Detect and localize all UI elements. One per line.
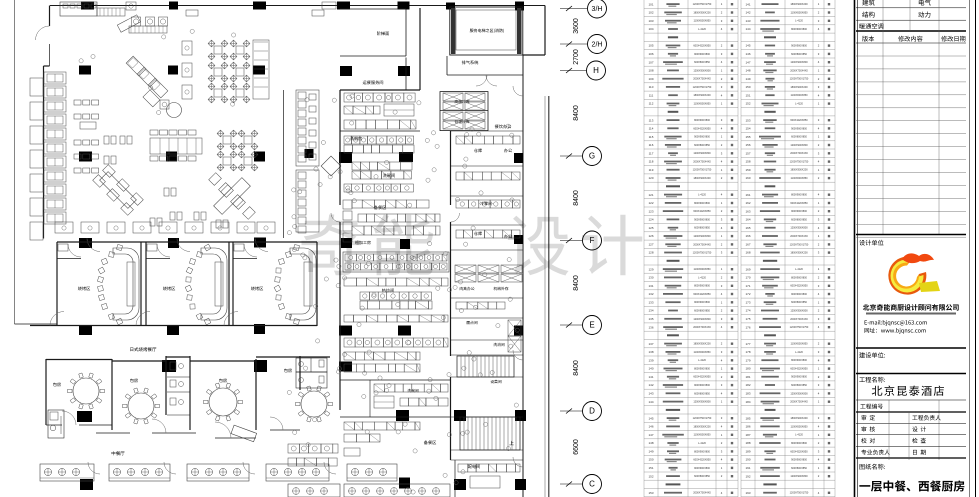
svg-text:191: 191	[745, 466, 750, 470]
svg-text:900X900X800: 900X900X800	[791, 127, 807, 130]
svg-text:1: 1	[721, 234, 723, 238]
svg-text:4: 4	[818, 60, 820, 64]
svg-text:900X900X800: 900X900X800	[694, 53, 710, 56]
svg-text:108: 108	[648, 69, 653, 73]
svg-text:8400: 8400	[573, 105, 580, 121]
svg-text:2: 2	[721, 209, 723, 213]
svg-text:4: 4	[818, 391, 820, 395]
svg-text:192: 192	[745, 474, 750, 478]
svg-text:146: 146	[648, 425, 653, 429]
svg-text:2: 2	[721, 441, 723, 445]
svg-text:1: 1	[721, 267, 723, 271]
svg-text:1: 1	[721, 168, 723, 172]
svg-text:3: 3	[721, 383, 723, 387]
svg-text:2: 2	[721, 474, 723, 478]
svg-text:1200X750X1750: 1200X750X1750	[790, 326, 809, 329]
svg-text:129: 129	[648, 267, 653, 271]
svg-text:8400: 8400	[573, 190, 580, 206]
svg-text:145: 145	[648, 416, 653, 420]
svg-text:4: 4	[721, 126, 723, 130]
svg-text:1: 1	[818, 234, 820, 238]
svg-text:600X4220X850: 600X4220X850	[693, 376, 711, 379]
svg-text:1800X900X200: 1800X900X200	[790, 3, 808, 6]
svg-text:900X900X800: 900X900X800	[694, 136, 710, 139]
svg-text:600X800X850: 600X800X850	[791, 301, 807, 304]
svg-text:3: 3	[721, 118, 723, 122]
svg-text:119: 119	[649, 168, 654, 172]
svg-text:2: 2	[818, 209, 820, 213]
svg-text:3: 3	[818, 85, 820, 89]
svg-text:1200X900X800: 1200X900X800	[790, 227, 808, 230]
svg-text:148: 148	[648, 441, 653, 445]
svg-text:177: 177	[745, 342, 750, 346]
svg-text:2: 2	[721, 375, 723, 379]
svg-text:3: 3	[818, 383, 820, 387]
svg-text:800X900X800: 800X900X800	[791, 359, 807, 362]
svg-text:157: 157	[745, 151, 750, 155]
svg-text:2: 2	[818, 275, 820, 279]
svg-text:147: 147	[648, 433, 653, 437]
svg-text:186: 186	[745, 425, 750, 429]
svg-text:2: 2	[818, 242, 820, 246]
svg-text:F: F	[590, 236, 595, 245]
svg-text:111: 111	[649, 93, 654, 97]
svg-text:153: 153	[648, 491, 653, 495]
svg-text:2000X700X4X0: 2000X700X4X0	[790, 235, 808, 238]
svg-text:136: 136	[648, 325, 653, 329]
svg-text:2000X700X4X0: 2000X700X4X0	[790, 318, 808, 321]
svg-text:141: 141	[648, 375, 653, 379]
svg-text:152: 152	[648, 474, 653, 478]
svg-text:145: 145	[745, 44, 750, 48]
svg-text:2: 2	[818, 77, 820, 81]
svg-text:3: 3	[818, 19, 820, 23]
svg-text:2: 2	[818, 441, 820, 445]
svg-text:101: 101	[648, 2, 653, 6]
svg-text:4: 4	[721, 27, 723, 31]
svg-text:D: D	[589, 407, 595, 416]
svg-text:3: 3	[721, 317, 723, 321]
svg-text:174: 174	[745, 309, 750, 313]
svg-text:147: 147	[745, 60, 750, 64]
svg-text:142: 142	[745, 11, 750, 15]
svg-text:3: 3	[818, 118, 820, 122]
svg-text:172: 172	[745, 292, 750, 296]
svg-text:3: 3	[721, 52, 723, 56]
svg-text:1100X600X850: 1100X600X850	[790, 425, 808, 428]
svg-text:1200X900X800: 1200X900X800	[790, 310, 808, 313]
svg-text:L-4120: L-4120	[698, 276, 706, 279]
svg-text:125: 125	[648, 226, 653, 230]
svg-text:4: 4	[721, 60, 723, 64]
svg-text:2: 2	[721, 143, 723, 147]
svg-text:1200X750X1750: 1200X750X1750	[693, 417, 712, 420]
svg-text:4: 4	[818, 458, 820, 462]
svg-text:600X800X850: 600X800X850	[694, 475, 710, 478]
svg-text:800X900X800: 800X900X800	[791, 194, 807, 197]
svg-text:139: 139	[648, 358, 653, 362]
svg-text:1800X900X200: 1800X900X200	[790, 252, 808, 255]
svg-text:146: 146	[745, 52, 750, 56]
svg-text:600X4220X850: 600X4220X850	[790, 367, 808, 370]
svg-text:143: 143	[648, 392, 653, 396]
svg-text:133: 133	[648, 300, 653, 304]
svg-text:1: 1	[818, 367, 820, 371]
svg-text:3: 3	[818, 449, 820, 453]
svg-text:1: 1	[818, 68, 820, 72]
svg-text:600X800X850: 600X800X850	[791, 384, 807, 387]
svg-text:182: 182	[745, 383, 750, 387]
svg-text:140: 140	[648, 367, 653, 371]
svg-text:1: 1	[721, 300, 723, 304]
svg-text:4: 4	[818, 292, 820, 296]
svg-text:143: 143	[745, 19, 750, 23]
svg-text:4: 4	[818, 160, 820, 164]
svg-text:138: 138	[648, 350, 653, 354]
svg-text:1800X900X200: 1800X900X200	[790, 169, 808, 172]
svg-text:900X900X800: 900X900X800	[694, 218, 710, 221]
svg-text:170: 170	[745, 276, 750, 280]
svg-text:131: 131	[648, 284, 653, 288]
svg-text:600X800X850: 600X800X850	[791, 136, 807, 139]
svg-text:1: 1	[721, 102, 723, 106]
svg-text:117: 117	[649, 151, 654, 155]
svg-text:110: 110	[649, 85, 654, 89]
svg-text:130: 130	[648, 276, 653, 280]
svg-text:184: 184	[745, 400, 750, 404]
svg-text:900X900X800: 900X900X800	[791, 293, 807, 296]
svg-text:144: 144	[648, 400, 653, 404]
svg-text:4: 4	[721, 292, 723, 296]
svg-text:L-4120: L-4120	[698, 359, 706, 362]
svg-text:163: 163	[745, 209, 750, 213]
svg-text:600X800X850: 600X800X850	[694, 310, 710, 313]
svg-text:3: 3	[818, 218, 820, 222]
svg-text:1200X750X1750: 1200X750X1750	[790, 243, 809, 246]
svg-text:189: 189	[745, 449, 750, 453]
svg-text:149: 149	[745, 77, 750, 81]
svg-text:166: 166	[745, 234, 750, 238]
svg-text:2: 2	[721, 242, 723, 246]
svg-text:1: 1	[721, 2, 723, 6]
svg-text:132: 132	[648, 292, 653, 296]
svg-text:3: 3	[721, 85, 723, 89]
svg-text:1: 1	[721, 135, 723, 139]
svg-text:3600: 3600	[573, 18, 580, 34]
svg-text:3: 3	[721, 19, 723, 23]
svg-text:2000X700X4X0: 2000X700X4X0	[693, 326, 711, 329]
svg-text:135: 135	[648, 317, 653, 321]
svg-text:122: 122	[648, 201, 653, 205]
svg-text:1: 1	[818, 433, 820, 437]
svg-text:121: 121	[648, 193, 653, 197]
svg-text:180: 180	[745, 367, 750, 371]
svg-text:L-4120: L-4120	[698, 194, 706, 197]
svg-text:2: 2	[721, 342, 723, 346]
svg-text:2: 2	[818, 44, 820, 48]
svg-text:3: 3	[818, 350, 820, 354]
svg-text:1800X900X200: 1800X900X200	[693, 94, 711, 97]
svg-text:3: 3	[721, 284, 723, 288]
svg-text:116: 116	[649, 143, 654, 147]
svg-text:126: 126	[648, 234, 653, 238]
svg-text:1200X900X800: 1200X900X800	[790, 392, 808, 395]
svg-text:4: 4	[818, 93, 820, 97]
svg-text:L-4120: L-4120	[698, 442, 706, 445]
svg-text:1200X900X800: 1200X900X800	[790, 475, 808, 478]
svg-text:169: 169	[745, 267, 750, 271]
svg-text:113: 113	[649, 118, 654, 122]
svg-text:171: 171	[745, 284, 750, 288]
svg-text:164: 164	[745, 218, 750, 222]
svg-text:1200X750X1750: 1200X750X1750	[790, 160, 809, 163]
svg-text:114: 114	[649, 127, 654, 131]
svg-text:2000X700X4X0: 2000X700X4X0	[790, 152, 808, 155]
svg-text:L-4120: L-4120	[698, 28, 706, 31]
svg-text:600X4220X850: 600X4220X850	[790, 119, 808, 122]
svg-text:4: 4	[818, 27, 820, 31]
svg-text:4: 4	[721, 491, 723, 495]
svg-text:3: 3	[721, 449, 723, 453]
svg-text:3: 3	[721, 350, 723, 354]
svg-text:1100X600X850: 1100X600X850	[790, 11, 808, 14]
svg-text:1: 1	[818, 400, 820, 404]
svg-text:800X900X800: 800X900X800	[694, 285, 710, 288]
svg-text:4: 4	[721, 358, 723, 362]
svg-text:600X4220X850: 600X4220X850	[693, 210, 711, 213]
svg-text:1800X900X200: 1800X900X200	[790, 86, 808, 89]
svg-text:800X900X800: 800X900X800	[791, 442, 807, 445]
svg-text:148: 148	[745, 69, 750, 73]
svg-text:173: 173	[745, 300, 750, 304]
svg-text:1100X600X850: 1100X600X850	[790, 177, 808, 180]
svg-text:2: 2	[721, 176, 723, 180]
svg-text:6600: 6600	[573, 439, 580, 455]
svg-text:3: 3	[818, 151, 820, 155]
svg-text:134: 134	[648, 309, 653, 313]
svg-text:102: 102	[648, 11, 653, 15]
svg-text:1: 1	[818, 201, 820, 205]
svg-text:800X900X800: 800X900X800	[791, 28, 807, 31]
svg-text:152: 152	[745, 102, 750, 106]
svg-text:181: 181	[745, 375, 750, 379]
svg-text:L-4120: L-4120	[795, 351, 803, 354]
svg-text:1800X900X200: 1800X900X200	[693, 343, 711, 346]
svg-text:2: 2	[818, 176, 820, 180]
svg-text:800X900X800: 800X900X800	[694, 450, 710, 453]
svg-text:L-4120: L-4120	[795, 268, 803, 271]
svg-text:158: 158	[745, 160, 750, 164]
svg-text:127: 127	[648, 242, 653, 246]
svg-text:1: 1	[721, 68, 723, 72]
svg-text:153: 153	[745, 118, 750, 122]
svg-text:1800X900X200: 1800X900X200	[790, 417, 808, 420]
svg-text:109: 109	[648, 77, 653, 81]
svg-text:1: 1	[818, 168, 820, 172]
svg-text:1200X900X800: 1200X900X800	[693, 401, 711, 404]
svg-text:1200X750X1750: 1200X750X1750	[693, 86, 712, 89]
svg-text:1: 1	[818, 267, 820, 271]
svg-text:C: C	[589, 480, 595, 489]
svg-text:900X900X800: 900X900X800	[694, 384, 710, 387]
svg-text:2000X700X4X0: 2000X700X4X0	[790, 69, 808, 72]
svg-text:2000X700X4X0: 2000X700X4X0	[693, 243, 711, 246]
svg-text:141: 141	[745, 2, 750, 6]
svg-text:3: 3	[721, 151, 723, 155]
svg-text:900X900X800: 900X900X800	[694, 301, 710, 304]
svg-text:600X800X850: 600X800X850	[694, 227, 710, 230]
svg-text:1: 1	[818, 300, 820, 304]
svg-text:1: 1	[721, 201, 723, 205]
svg-text:4: 4	[818, 425, 820, 429]
svg-text:1100X600X850: 1100X600X850	[693, 434, 711, 437]
svg-text:3/H: 3/H	[592, 6, 603, 13]
svg-text:900X900X800: 900X900X800	[791, 210, 807, 213]
svg-text:3: 3	[818, 317, 820, 321]
svg-text:2: 2	[818, 309, 820, 313]
svg-text:149: 149	[648, 449, 653, 453]
svg-text:160: 160	[745, 176, 750, 180]
svg-text:1: 1	[818, 466, 820, 470]
svg-text:600X800X850: 600X800X850	[694, 144, 710, 147]
svg-text:154: 154	[745, 127, 750, 131]
svg-text:1200X750X1750: 1200X750X1750	[693, 169, 712, 172]
svg-text:104: 104	[648, 27, 653, 31]
svg-text:1: 1	[818, 102, 820, 106]
svg-text:1800X900X200: 1800X900X200	[693, 11, 711, 14]
svg-text:1200X750X1750: 1200X750X1750	[790, 492, 809, 495]
svg-text:1100X600X850: 1100X600X850	[790, 343, 808, 346]
svg-text:155: 155	[745, 135, 750, 139]
svg-text:G: G	[589, 152, 595, 161]
svg-text:8400: 8400	[573, 360, 580, 376]
svg-text:L-4120: L-4120	[795, 103, 803, 106]
svg-text:1200X900X800: 1200X900X800	[693, 318, 711, 321]
svg-text:105: 105	[648, 44, 653, 48]
svg-text:151: 151	[745, 93, 750, 97]
svg-text:2: 2	[721, 77, 723, 81]
svg-text:2: 2	[721, 11, 723, 15]
svg-text:800X900X800: 800X900X800	[694, 119, 710, 122]
svg-text:4: 4	[721, 193, 723, 197]
svg-text:107: 107	[648, 60, 653, 64]
svg-text:2: 2	[818, 375, 820, 379]
svg-text:142: 142	[648, 383, 653, 387]
svg-text:600X800X850: 600X800X850	[791, 467, 807, 470]
svg-text:4: 4	[721, 458, 723, 462]
svg-text:4: 4	[721, 93, 723, 97]
svg-text:1200X900X800: 1200X900X800	[790, 61, 808, 64]
svg-text:193: 193	[745, 491, 750, 495]
svg-text:2000X700X4X0: 2000X700X4X0	[693, 160, 711, 163]
svg-text:1200X900X800: 1200X900X800	[693, 69, 711, 72]
svg-text:4: 4	[721, 391, 723, 395]
svg-text:190: 190	[745, 458, 750, 462]
svg-text:4: 4	[721, 325, 723, 329]
svg-text:1: 1	[818, 2, 820, 6]
svg-text:3: 3	[818, 52, 820, 56]
svg-text:4: 4	[721, 425, 723, 429]
svg-text:112: 112	[649, 102, 654, 106]
svg-text:137: 137	[648, 342, 653, 346]
svg-text:4: 4	[818, 325, 820, 329]
svg-text:3: 3	[721, 218, 723, 222]
svg-text:4: 4	[818, 358, 820, 362]
svg-text:2/H: 2/H	[592, 42, 603, 49]
svg-text:3: 3	[721, 416, 723, 420]
svg-text:175: 175	[745, 317, 750, 321]
svg-text:3: 3	[818, 284, 820, 288]
svg-text:1100X600X850: 1100X600X850	[693, 351, 711, 354]
svg-text:4: 4	[818, 193, 820, 197]
svg-text:2: 2	[818, 342, 820, 346]
svg-text:L-4120: L-4120	[795, 20, 803, 23]
svg-text:168: 168	[745, 251, 750, 255]
svg-text:600X4220X850: 600X4220X850	[790, 202, 808, 205]
svg-text:165: 165	[745, 226, 750, 230]
svg-text:151: 151	[648, 466, 653, 470]
svg-text:600X800X850: 600X800X850	[694, 392, 710, 395]
svg-text:600X4220X850: 600X4220X850	[790, 285, 808, 288]
svg-text:E: E	[589, 321, 594, 330]
svg-text:L-4120: L-4120	[795, 434, 803, 437]
svg-text:3: 3	[818, 251, 820, 255]
svg-text:2700: 2700	[573, 49, 580, 65]
svg-text:800X900X800: 800X900X800	[694, 367, 710, 370]
svg-text:144: 144	[745, 27, 750, 31]
svg-text:1800X900X200: 1800X900X200	[693, 425, 711, 428]
svg-text:1200X900X800: 1200X900X800	[693, 152, 711, 155]
svg-text:1: 1	[721, 466, 723, 470]
svg-text:4: 4	[818, 491, 820, 495]
svg-text:167: 167	[745, 242, 750, 246]
svg-text:900X900X800: 900X900X800	[791, 459, 807, 462]
svg-text:4: 4	[818, 226, 820, 230]
svg-text:4: 4	[818, 126, 820, 130]
svg-text:185: 185	[745, 416, 750, 420]
svg-text:2: 2	[721, 309, 723, 313]
svg-text:600X800X850: 600X800X850	[791, 218, 807, 221]
svg-text:1: 1	[721, 367, 723, 371]
svg-text:8400: 8400	[573, 275, 580, 291]
svg-text:1100X600X850: 1100X600X850	[693, 268, 711, 271]
svg-text:106: 106	[648, 52, 653, 56]
svg-text:2: 2	[721, 44, 723, 48]
svg-text:183: 183	[745, 392, 750, 396]
svg-text:124: 124	[648, 218, 653, 222]
svg-text:2000X700X4X0: 2000X700X4X0	[693, 78, 711, 81]
svg-text:1: 1	[818, 135, 820, 139]
svg-text:1100X600X850: 1100X600X850	[693, 20, 711, 23]
svg-text:3: 3	[818, 416, 820, 420]
svg-text:3: 3	[721, 251, 723, 255]
svg-text:2: 2	[818, 11, 820, 15]
svg-text:600X800X850: 600X800X850	[791, 53, 807, 56]
svg-text:2000X700X4X0: 2000X700X4X0	[790, 401, 808, 404]
svg-text:150: 150	[648, 458, 653, 462]
svg-text:1200X900X800: 1200X900X800	[790, 144, 808, 147]
svg-text:159: 159	[745, 168, 750, 172]
svg-text:150: 150	[745, 85, 750, 89]
svg-text:600X4220X850: 600X4220X850	[693, 45, 711, 48]
svg-text:4: 4	[721, 160, 723, 164]
svg-text:1200X900X800: 1200X900X800	[693, 235, 711, 238]
svg-text:900X900X800: 900X900X800	[791, 45, 807, 48]
svg-text:161: 161	[745, 193, 750, 197]
svg-text:179: 179	[745, 358, 750, 362]
svg-text:2: 2	[721, 275, 723, 279]
svg-text:800X900X800: 800X900X800	[694, 202, 710, 205]
